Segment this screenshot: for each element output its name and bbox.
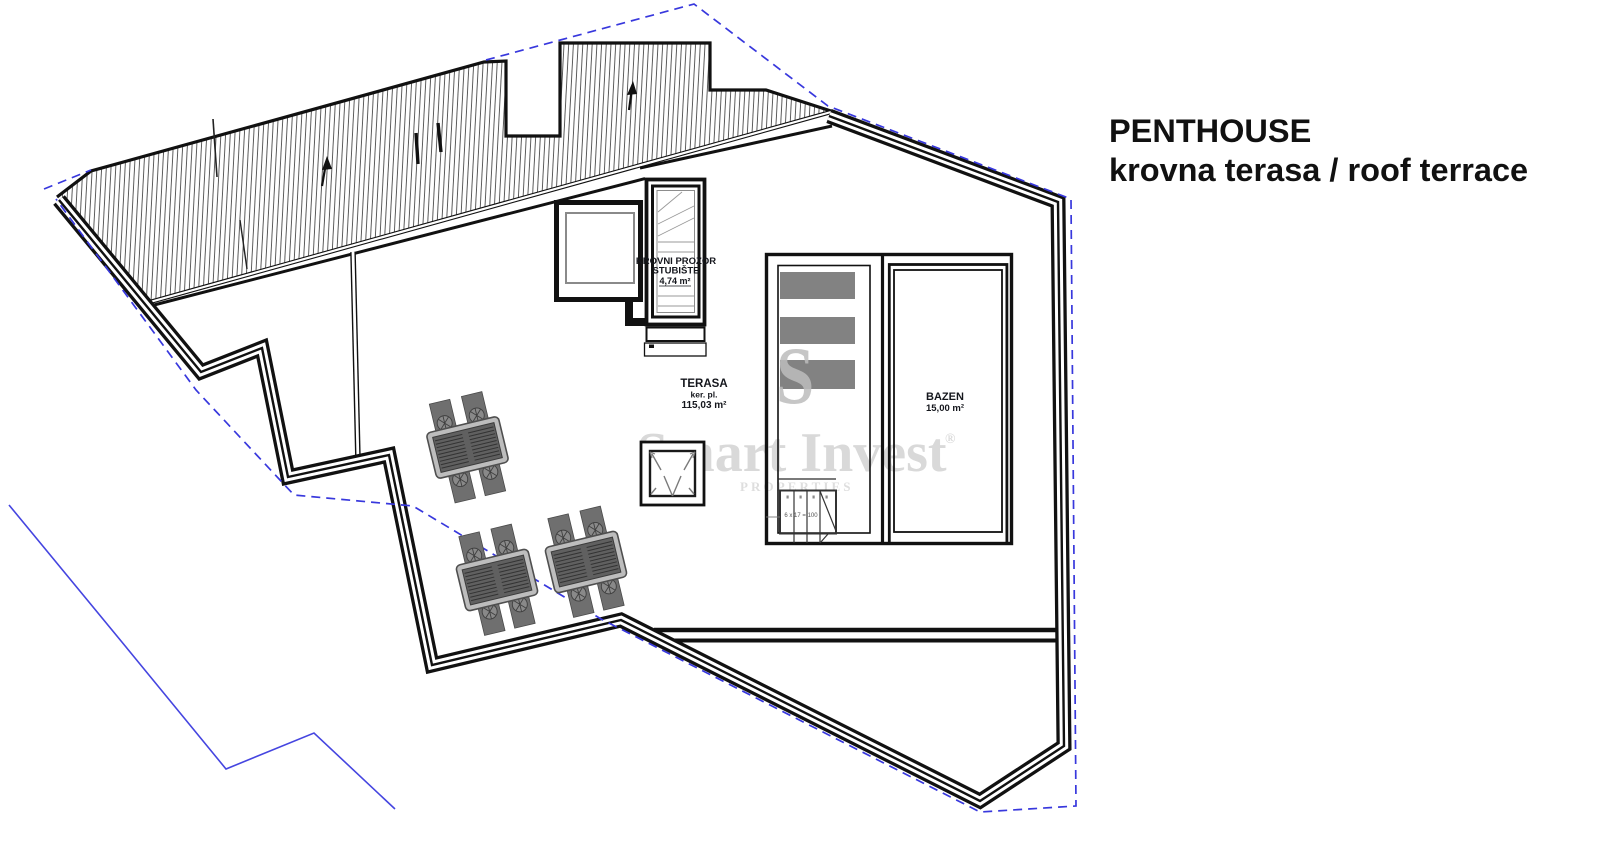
- svg-text:15,00 m²: 15,00 m²: [926, 403, 964, 414]
- svg-text:4,74 m²: 4,74 m²: [659, 276, 690, 286]
- svg-text:ker. pl.: ker. pl.: [691, 390, 718, 400]
- svg-text:STUBIŠTE: STUBIŠTE: [653, 265, 700, 277]
- svg-text:PENTHOUSE: PENTHOUSE: [1109, 113, 1311, 149]
- svg-text:6 x 17 = 100: 6 x 17 = 100: [784, 513, 818, 519]
- svg-text:115,03 m²: 115,03 m²: [681, 400, 727, 411]
- svg-text:BAZEN: BAZEN: [926, 391, 964, 403]
- svg-text:®: ®: [945, 432, 956, 447]
- svg-text:krovna terasa / roof terrace: krovna terasa / roof terrace: [1109, 152, 1528, 188]
- svg-text:TERASA: TERASA: [680, 378, 727, 390]
- svg-text:S: S: [776, 332, 814, 422]
